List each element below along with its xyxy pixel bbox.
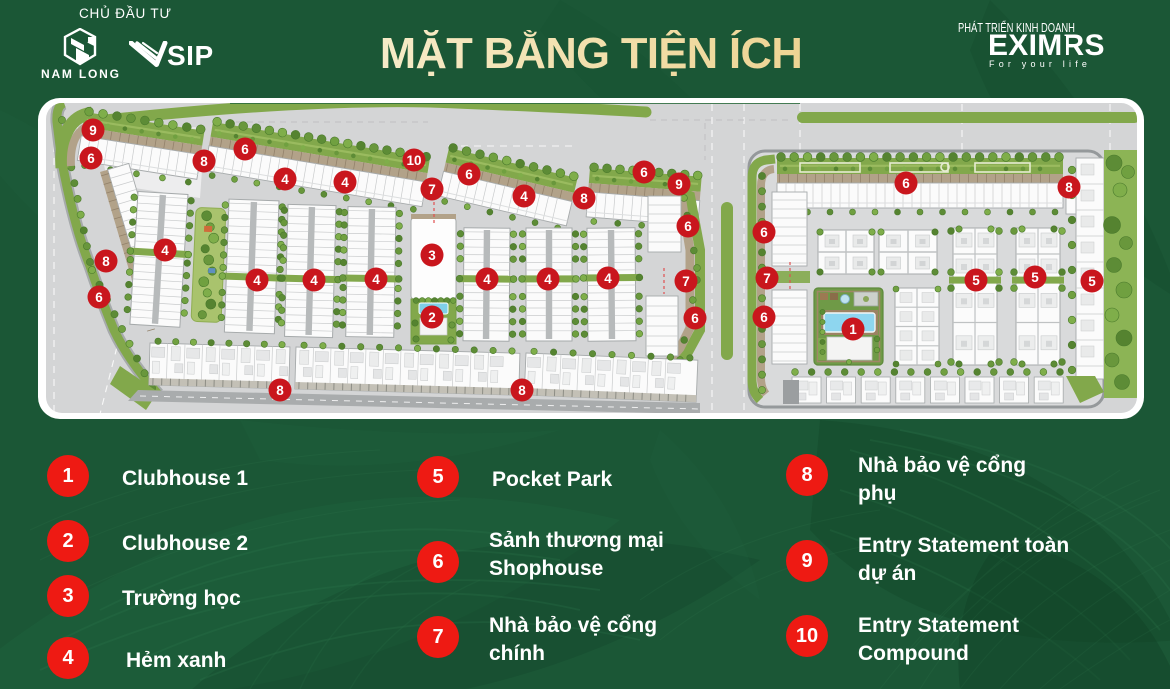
svg-text:5: 5: [1031, 270, 1039, 285]
svg-text:7: 7: [763, 271, 771, 286]
svg-text:8: 8: [1065, 180, 1073, 195]
svg-text:10: 10: [406, 153, 421, 168]
svg-text:4: 4: [544, 272, 552, 287]
svg-text:5: 5: [972, 273, 980, 288]
svg-text:8: 8: [518, 383, 526, 398]
svg-text:6: 6: [87, 151, 95, 166]
svg-text:6: 6: [95, 290, 103, 305]
svg-text:6: 6: [241, 142, 249, 157]
svg-text:8: 8: [276, 383, 284, 398]
svg-text:9: 9: [89, 123, 97, 138]
svg-text:4: 4: [310, 273, 318, 288]
svg-text:6: 6: [684, 219, 692, 234]
svg-text:8: 8: [102, 254, 110, 269]
svg-text:4: 4: [372, 272, 380, 287]
svg-text:6: 6: [760, 225, 768, 240]
svg-text:4: 4: [341, 175, 349, 190]
svg-text:6: 6: [640, 165, 648, 180]
svg-text:6: 6: [760, 310, 768, 325]
svg-text:7: 7: [428, 182, 436, 197]
svg-text:8: 8: [580, 191, 588, 206]
svg-text:4: 4: [161, 243, 169, 258]
svg-text:4: 4: [604, 271, 612, 286]
svg-text:6: 6: [465, 167, 473, 182]
svg-text:4: 4: [520, 189, 528, 204]
svg-text:6: 6: [902, 176, 910, 191]
svg-text:5: 5: [1088, 274, 1096, 289]
svg-text:2: 2: [428, 310, 436, 325]
svg-text:8: 8: [200, 154, 208, 169]
svg-text:4: 4: [483, 272, 491, 287]
svg-text:9: 9: [675, 177, 683, 192]
svg-text:3: 3: [428, 248, 436, 263]
svg-text:4: 4: [253, 273, 261, 288]
svg-text:7: 7: [682, 274, 690, 289]
svg-text:1: 1: [849, 322, 857, 337]
svg-text:4: 4: [281, 172, 289, 187]
svg-text:6: 6: [691, 311, 699, 326]
